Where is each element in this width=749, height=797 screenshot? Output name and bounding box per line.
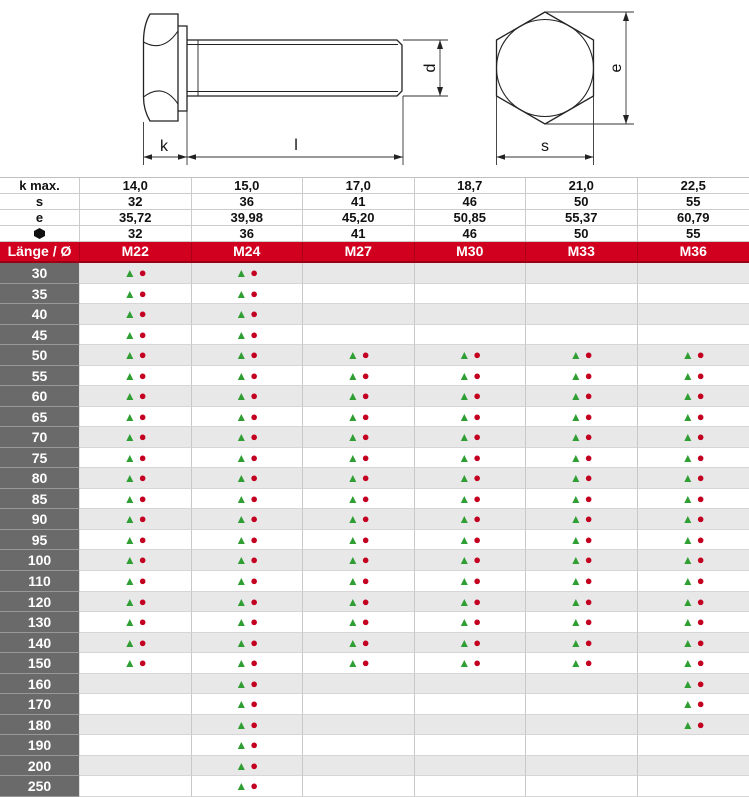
availability-cell: ▲●: [415, 633, 527, 654]
availability-cell: ▲●: [303, 653, 415, 674]
triangle-marker: ▲: [235, 553, 247, 567]
triangle-marker: ▲: [347, 512, 359, 526]
triangle-marker: ▲: [682, 471, 694, 485]
dot-marker: ●: [250, 470, 258, 485]
availability-cell: [80, 674, 192, 695]
length-cell-150: 150: [0, 653, 80, 674]
availability-cell: ▲●: [303, 612, 415, 633]
triangle-marker: ▲: [347, 369, 359, 383]
availability-cell: ▲●: [192, 550, 304, 571]
triangle-marker: ▲: [235, 615, 247, 629]
dot-marker: ●: [585, 635, 593, 650]
column-header-m30: M30: [415, 242, 527, 263]
dot-marker: ●: [697, 552, 705, 567]
dot-marker: ●: [250, 594, 258, 609]
availability-cell: [303, 756, 415, 777]
availability-cell: [415, 263, 527, 284]
triangle-marker: ▲: [124, 492, 136, 506]
triangle-marker: ▲: [570, 471, 582, 485]
availability-cell: ▲●: [415, 489, 527, 510]
spec-row-label: e: [0, 210, 80, 226]
spec-value: 55: [638, 194, 749, 210]
dot-marker: ●: [139, 655, 147, 670]
availability-cell: [638, 735, 749, 756]
availability-cell: ▲●: [192, 304, 304, 325]
triangle-marker: ▲: [458, 369, 470, 383]
dot-marker: ●: [473, 573, 481, 588]
dot-marker: ●: [585, 368, 593, 383]
availability-cell: [638, 284, 749, 305]
corner-header-laenge: Länge / Ø: [0, 242, 80, 263]
dot-marker: ●: [362, 573, 370, 588]
triangle-marker: ▲: [347, 430, 359, 444]
triangle-marker: ▲: [235, 574, 247, 588]
availability-cell: [526, 756, 638, 777]
triangle-marker: ▲: [682, 512, 694, 526]
availability-cell: ▲●: [638, 468, 749, 489]
availability-cell: ▲●: [192, 633, 304, 654]
dot-marker: ●: [139, 635, 147, 650]
triangle-marker: ▲: [235, 266, 247, 280]
availability-cell: [303, 674, 415, 695]
dot-marker: ●: [697, 429, 705, 444]
dot-marker: ●: [139, 265, 147, 280]
availability-cell: ▲●: [638, 633, 749, 654]
availability-cell: ▲●: [80, 304, 192, 325]
bolt-side-view: [144, 14, 403, 121]
dot-marker: ●: [362, 594, 370, 609]
availability-cell: ▲●: [415, 427, 527, 448]
availability-cell: ▲●: [526, 530, 638, 551]
head-dimension-arrows: [497, 12, 630, 160]
availability-cell: [80, 735, 192, 756]
triangle-marker: ▲: [682, 697, 694, 711]
triangle-marker: ▲: [570, 348, 582, 362]
spec-value: 50: [526, 194, 638, 210]
triangle-marker: ▲: [124, 636, 136, 650]
triangle-marker: ▲: [124, 348, 136, 362]
availability-cell: ▲●: [415, 550, 527, 571]
availability-cell: ▲●: [415, 530, 527, 551]
triangle-marker: ▲: [235, 451, 247, 465]
triangle-marker: ▲: [124, 389, 136, 403]
availability-cell: ▲●: [303, 509, 415, 530]
triangle-marker: ▲: [347, 615, 359, 629]
availability-cell: ▲●: [638, 345, 749, 366]
availability-cell: ▲●: [303, 489, 415, 510]
triangle-marker: ▲: [124, 307, 136, 321]
availability-cell: [303, 263, 415, 284]
dot-marker: ●: [139, 429, 147, 444]
dot-marker: ●: [139, 594, 147, 609]
length-cell-75: 75: [0, 448, 80, 469]
dot-marker: ●: [473, 450, 481, 465]
dot-marker: ●: [139, 614, 147, 629]
availability-cell: [415, 694, 527, 715]
dot-marker: ●: [585, 614, 593, 629]
availability-cell: [415, 284, 527, 305]
dot-marker: ●: [473, 614, 481, 629]
dot-marker: ●: [250, 778, 258, 793]
length-cell-85: 85: [0, 489, 80, 510]
availability-cell: ▲●: [638, 612, 749, 633]
triangle-marker: ▲: [124, 656, 136, 670]
dot-marker: ●: [139, 327, 147, 342]
dot-marker: ●: [362, 532, 370, 547]
triangle-marker: ▲: [235, 759, 247, 773]
availability-cell: ▲●: [80, 633, 192, 654]
dot-marker: ●: [362, 655, 370, 670]
dot-marker: ●: [697, 450, 705, 465]
availability-cell: ▲●: [80, 612, 192, 633]
triangle-marker: ▲: [682, 348, 694, 362]
availability-cell: ▲●: [80, 489, 192, 510]
dot-marker: ●: [139, 511, 147, 526]
availability-cell: ▲●: [526, 612, 638, 633]
spec-value: 22,5: [638, 178, 749, 194]
dot-marker: ●: [362, 347, 370, 362]
triangle-marker: ▲: [682, 533, 694, 547]
availability-cell: ▲●: [415, 612, 527, 633]
triangle-marker: ▲: [124, 410, 136, 424]
triangle-marker: ▲: [235, 369, 247, 383]
dot-marker: ●: [585, 552, 593, 567]
dot-marker: ●: [697, 470, 705, 485]
dot-marker: ●: [697, 676, 705, 691]
availability-cell: ▲●: [80, 407, 192, 428]
triangle-marker: ▲: [235, 512, 247, 526]
length-cell-250: 250: [0, 776, 80, 797]
availability-cell: ▲●: [192, 509, 304, 530]
availability-cell: ▲●: [192, 530, 304, 551]
triangle-marker: ▲: [570, 595, 582, 609]
length-cell-190: 190: [0, 735, 80, 756]
availability-cell: ▲●: [303, 427, 415, 448]
availability-cell: [526, 694, 638, 715]
triangle-marker: ▲: [347, 410, 359, 424]
availability-cell: [80, 715, 192, 736]
triangle-marker: ▲: [235, 677, 247, 691]
dot-marker: ●: [473, 511, 481, 526]
triangle-marker: ▲: [235, 697, 247, 711]
dot-marker: ●: [697, 635, 705, 650]
length-cell-45: 45: [0, 325, 80, 346]
dot-marker: ●: [250, 327, 258, 342]
dot-marker: ●: [250, 758, 258, 773]
dot-marker: ●: [250, 286, 258, 301]
triangle-marker: ▲: [458, 348, 470, 362]
availability-cell: ▲●: [80, 509, 192, 530]
availability-cell: ▲●: [192, 468, 304, 489]
dot-marker: ●: [250, 306, 258, 321]
dot-marker: ●: [139, 552, 147, 567]
bolt-technical-drawing: k l d e s: [0, 0, 749, 177]
dot-marker: ●: [250, 717, 258, 732]
dot-marker: ●: [585, 511, 593, 526]
triangle-marker: ▲: [570, 451, 582, 465]
triangle-marker: ▲: [458, 410, 470, 424]
dot-marker: ●: [473, 532, 481, 547]
dim-label-s: s: [541, 138, 549, 155]
dot-marker: ●: [697, 655, 705, 670]
dot-marker: ●: [585, 388, 593, 403]
column-header-m33: M33: [526, 242, 638, 263]
availability-cell: [303, 304, 415, 325]
triangle-marker: ▲: [682, 492, 694, 506]
triangle-marker: ▲: [347, 656, 359, 670]
triangle-marker: ▲: [682, 553, 694, 567]
length-cell-65: 65: [0, 407, 80, 428]
availability-cell: ▲●: [638, 694, 749, 715]
availability-cell: ▲●: [526, 448, 638, 469]
availability-cell: ▲●: [415, 509, 527, 530]
triangle-marker: ▲: [124, 553, 136, 567]
dot-marker: ●: [697, 368, 705, 383]
column-header-m24: M24: [192, 242, 304, 263]
spec-value: 55: [638, 226, 749, 242]
triangle-marker: ▲: [347, 451, 359, 465]
availability-cell: [415, 776, 527, 797]
availability-cell: [526, 325, 638, 346]
availability-cell: ▲●: [192, 694, 304, 715]
availability-cell: ▲●: [415, 345, 527, 366]
dot-marker: ●: [362, 511, 370, 526]
triangle-marker: ▲: [682, 451, 694, 465]
dot-marker: ●: [250, 450, 258, 465]
triangle-marker: ▲: [458, 656, 470, 670]
dot-marker: ●: [250, 347, 258, 362]
dot-marker: ●: [250, 388, 258, 403]
length-cell-55: 55: [0, 366, 80, 387]
dot-marker: ●: [250, 614, 258, 629]
availability-cell: ▲●: [80, 550, 192, 571]
triangle-marker: ▲: [682, 574, 694, 588]
length-cell-35: 35: [0, 284, 80, 305]
availability-cell: [415, 715, 527, 736]
triangle-marker: ▲: [458, 595, 470, 609]
triangle-marker: ▲: [682, 656, 694, 670]
length-cell-30: 30: [0, 263, 80, 284]
length-cell-80: 80: [0, 468, 80, 489]
triangle-marker: ▲: [458, 533, 470, 547]
availability-cell: ▲●: [415, 468, 527, 489]
availability-cell: ▲●: [526, 386, 638, 407]
triangle-marker: ▲: [570, 512, 582, 526]
availability-cell: ▲●: [80, 345, 192, 366]
availability-cell: ▲●: [192, 653, 304, 674]
spec-value: 36: [192, 194, 304, 210]
triangle-marker: ▲: [235, 636, 247, 650]
dot-marker: ●: [139, 388, 147, 403]
availability-cell: ▲●: [303, 345, 415, 366]
availability-cell: ▲●: [192, 386, 304, 407]
availability-cell: ▲●: [192, 489, 304, 510]
dot-marker: ●: [139, 532, 147, 547]
triangle-marker: ▲: [570, 430, 582, 444]
availability-cell: ▲●: [80, 468, 192, 489]
triangle-marker: ▲: [235, 492, 247, 506]
availability-cell: ▲●: [303, 571, 415, 592]
triangle-marker: ▲: [235, 779, 247, 793]
dot-marker: ●: [473, 429, 481, 444]
triangle-marker: ▲: [570, 656, 582, 670]
length-cell-50: 50: [0, 345, 80, 366]
dot-marker: ●: [362, 450, 370, 465]
triangle-marker: ▲: [682, 369, 694, 383]
triangle-marker: ▲: [124, 287, 136, 301]
availability-cell: [303, 694, 415, 715]
dot-marker: ●: [585, 409, 593, 424]
triangle-marker: ▲: [235, 430, 247, 444]
availability-cell: ▲●: [526, 345, 638, 366]
availability-cell: ▲●: [80, 592, 192, 613]
dim-label-l: l: [294, 137, 298, 154]
availability-cell: ▲●: [303, 366, 415, 387]
spec-value: 21,0: [526, 178, 638, 194]
availability-cell: ▲●: [415, 366, 527, 387]
availability-cell: [526, 735, 638, 756]
triangle-marker: ▲: [235, 287, 247, 301]
dot-marker: ●: [362, 388, 370, 403]
dot-marker: ●: [585, 450, 593, 465]
spec-value: 41: [303, 194, 415, 210]
dot-marker: ●: [250, 265, 258, 280]
availability-cell: [638, 304, 749, 325]
availability-cell: ▲●: [415, 653, 527, 674]
triangle-marker: ▲: [458, 553, 470, 567]
triangle-marker: ▲: [458, 512, 470, 526]
availability-cell: ▲●: [303, 550, 415, 571]
head-view-dimensions: [497, 12, 635, 165]
dot-marker: ●: [697, 491, 705, 506]
availability-cell: [415, 674, 527, 695]
length-cell-40: 40: [0, 304, 80, 325]
triangle-marker: ▲: [235, 348, 247, 362]
dot-marker: ●: [250, 737, 258, 752]
availability-cell: [303, 776, 415, 797]
availability-cell: ▲●: [303, 468, 415, 489]
length-cell-180: 180: [0, 715, 80, 736]
availability-cell: ▲●: [303, 448, 415, 469]
length-cell-100: 100: [0, 550, 80, 571]
availability-cell: ▲●: [526, 366, 638, 387]
triangle-marker: ▲: [235, 307, 247, 321]
availability-cell: ▲●: [526, 571, 638, 592]
triangle-marker: ▲: [347, 553, 359, 567]
dot-marker: ●: [139, 491, 147, 506]
triangle-marker: ▲: [570, 410, 582, 424]
spec-value: 15,0: [192, 178, 304, 194]
triangle-marker: ▲: [124, 471, 136, 485]
availability-cell: [415, 756, 527, 777]
triangle-marker: ▲: [124, 266, 136, 280]
triangle-marker: ▲: [235, 410, 247, 424]
triangle-marker: ▲: [124, 430, 136, 444]
length-cell-120: 120: [0, 592, 80, 613]
spec-value: 35,72: [80, 210, 192, 226]
triangle-marker: ▲: [235, 738, 247, 752]
availability-cell: ▲●: [80, 427, 192, 448]
dot-marker: ●: [250, 676, 258, 691]
triangle-marker: ▲: [570, 533, 582, 547]
column-header-m22: M22: [80, 242, 192, 263]
spec-value: 32: [80, 226, 192, 242]
dot-marker: ●: [585, 470, 593, 485]
dot-marker: ●: [697, 614, 705, 629]
dot-marker: ●: [697, 347, 705, 362]
bolt-head-view: [497, 12, 594, 124]
triangle-marker: ▲: [682, 430, 694, 444]
length-cell-200: 200: [0, 756, 80, 777]
triangle-marker: ▲: [124, 512, 136, 526]
availability-cell: ▲●: [638, 509, 749, 530]
length-cell-170: 170: [0, 694, 80, 715]
dot-marker: ●: [250, 511, 258, 526]
spec-value: 39,98: [192, 210, 304, 226]
availability-cell: ▲●: [526, 468, 638, 489]
dot-marker: ●: [362, 552, 370, 567]
availability-cell: [415, 735, 527, 756]
dot-marker: ●: [585, 347, 593, 362]
triangle-marker: ▲: [235, 533, 247, 547]
availability-cell: ▲●: [526, 427, 638, 448]
availability-cell: ▲●: [526, 509, 638, 530]
availability-cell: ▲●: [415, 592, 527, 613]
dot-marker: ●: [473, 635, 481, 650]
availability-cell: ▲●: [303, 386, 415, 407]
triangle-marker: ▲: [458, 430, 470, 444]
length-cell-95: 95: [0, 530, 80, 551]
availability-cell: ▲●: [415, 386, 527, 407]
availability-cell: ▲●: [638, 427, 749, 448]
spec-value: 41: [303, 226, 415, 242]
dot-marker: ●: [473, 368, 481, 383]
availability-cell: ▲●: [526, 489, 638, 510]
triangle-marker: ▲: [347, 574, 359, 588]
dot-marker: ●: [585, 491, 593, 506]
dim-label-e: e: [608, 63, 625, 72]
availability-cell: ▲●: [192, 592, 304, 613]
availability-cell: [80, 694, 192, 715]
availability-cell: ▲●: [192, 571, 304, 592]
dot-marker: ●: [697, 696, 705, 711]
spec-value: 55,37: [526, 210, 638, 226]
availability-cell: [303, 735, 415, 756]
column-header-m27: M27: [303, 242, 415, 263]
column-header-m36: M36: [638, 242, 749, 263]
dot-marker: ●: [585, 594, 593, 609]
dot-marker: ●: [139, 450, 147, 465]
availability-cell: ▲●: [80, 530, 192, 551]
availability-cell: [415, 325, 527, 346]
triangle-marker: ▲: [124, 328, 136, 342]
triangle-marker: ▲: [458, 471, 470, 485]
triangle-marker: ▲: [682, 718, 694, 732]
availability-cell: ▲●: [80, 284, 192, 305]
triangle-marker: ▲: [570, 574, 582, 588]
length-cell-160: 160: [0, 674, 80, 695]
triangle-marker: ▲: [682, 636, 694, 650]
triangle-marker: ▲: [235, 328, 247, 342]
dot-marker: ●: [250, 696, 258, 711]
dimension-labels: k l d e s: [160, 63, 625, 155]
availability-cell: [526, 263, 638, 284]
availability-cell: ▲●: [638, 674, 749, 695]
availability-cell: ▲●: [638, 366, 749, 387]
triangle-marker: ▲: [458, 389, 470, 403]
availability-cell: [526, 776, 638, 797]
dot-marker: ●: [362, 470, 370, 485]
